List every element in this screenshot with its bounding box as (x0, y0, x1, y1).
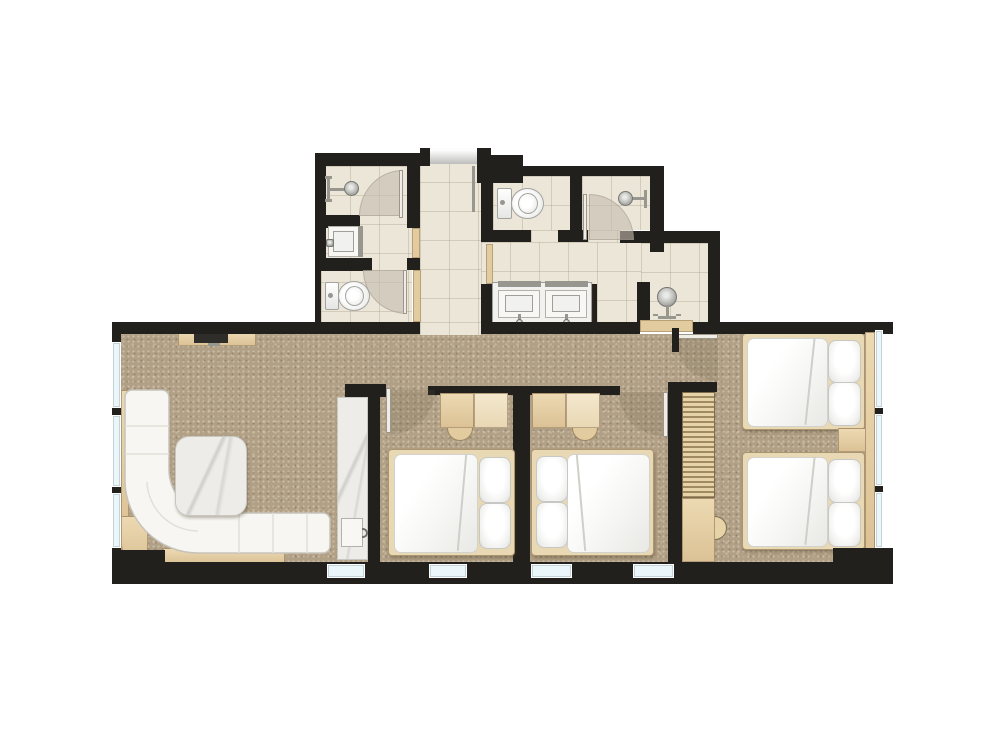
toilet2-doorway (531, 230, 560, 242)
main-wall-bottom (112, 562, 893, 584)
bed2-pillow-top (536, 456, 568, 502)
desk1-left-half (440, 393, 474, 428)
window-bottom-2 (429, 564, 467, 578)
shower3-handle-left-icon (653, 314, 658, 316)
window-bottom-4 (633, 564, 674, 578)
shower1-wall-patch (321, 166, 326, 215)
bed-bedroom1 (388, 449, 515, 556)
closet-louver-doors (682, 392, 715, 498)
bathroom-left-wall-top (315, 153, 420, 166)
toilet1-flush-button (328, 293, 333, 298)
minibar (341, 518, 363, 547)
closet-cap-wall (668, 382, 717, 392)
washbasin-bowl (333, 231, 354, 252)
vanity-shelf-left (498, 281, 541, 287)
shower3-wall-left-lower (637, 282, 650, 322)
desk1-right-half (474, 393, 508, 428)
bed3a-pillow-bottom (828, 382, 861, 426)
tv-icon (194, 334, 228, 343)
coffee-table (175, 436, 247, 516)
bed-bedroom2 (531, 449, 654, 556)
shower-valve-top-icon (325, 176, 332, 179)
washbasin-niche-threshold (412, 228, 420, 258)
shower2-bracket-icon (644, 190, 647, 208)
window-right-1 (875, 330, 883, 408)
window-left-3 (112, 493, 121, 548)
main-wall-top-middle (481, 322, 640, 334)
bed1-pillow-top (479, 457, 511, 503)
bathroom-mid-wall-left (481, 166, 493, 232)
shower3-wall-top (620, 231, 720, 243)
toilet2-flush-button (500, 200, 505, 205)
toilet1-door-leaf (403, 270, 407, 314)
entry-door-leaf (472, 166, 475, 212)
vanity-sink-left-bowl (505, 295, 533, 312)
bed3b-pillow-bottom (828, 502, 861, 547)
washbasin-faucet-icon (326, 239, 334, 247)
vanity-sink-right-bowl (552, 295, 580, 312)
toilet2-wall-bottom (481, 230, 531, 242)
bathroom-left-wall-right-stub (407, 258, 420, 270)
bathroom-mid-wall-top (523, 166, 664, 176)
shower2-head-icon (618, 191, 633, 206)
floor-plan (0, 0, 1000, 750)
shower2-door-leaf (583, 194, 587, 240)
vanity-shelf-right (545, 281, 588, 287)
closet-base (682, 498, 715, 562)
entry-wall-left (420, 148, 430, 166)
bedroom1-door-leaf (386, 388, 391, 433)
toilet1-seat (345, 286, 364, 306)
toilet2-seat (518, 193, 538, 214)
desk2-left-half (532, 393, 566, 428)
hall-main-opening (420, 322, 481, 335)
partition-bedroom2-closet (668, 382, 682, 564)
window-right-3 (875, 492, 883, 548)
bedroom2-door-leaf (663, 392, 668, 437)
left-wall-mullion-1 (112, 408, 121, 415)
bed3b-mattress (747, 457, 828, 547)
bathroom-left-wall-left-lower (315, 271, 321, 322)
hall-vanity-threshold (486, 244, 493, 284)
desk2-right-half (566, 393, 600, 428)
main-wall-top-left (112, 322, 422, 334)
bed3b-pillow-top (828, 459, 861, 503)
partition-bedroom1-bedroom2 (513, 386, 530, 564)
bed1-pillow-bottom (479, 503, 511, 549)
shower-valve-bottom-icon (325, 199, 332, 202)
shower3-head-icon (657, 287, 677, 307)
window-bottom-3 (531, 564, 572, 578)
entry-door-opening (430, 148, 477, 164)
threshold-stub-wall (672, 328, 679, 352)
bedroom3-door-leaf (678, 334, 718, 339)
window-right-2 (875, 414, 883, 486)
shower3-handle-bar-icon (658, 316, 676, 319)
bed-bedroom3-bottom (742, 452, 865, 550)
bed3a-mattress (747, 338, 828, 427)
shower-head-icon (344, 181, 359, 196)
left-wall-top (112, 322, 121, 342)
shower3-main-threshold (640, 320, 693, 332)
toilet1-threshold (413, 270, 421, 322)
bed3a-pillow-top (828, 340, 861, 383)
main-wall-top-right (693, 322, 893, 334)
bed2-pillow-bottom (536, 502, 568, 548)
towel-rail-icon (358, 226, 363, 257)
window-bottom-1 (327, 564, 365, 578)
shower3-wall-right (708, 231, 720, 332)
bed-bedroom3-top (742, 333, 865, 430)
tv-stand-icon (208, 343, 220, 346)
window-left-2 (112, 415, 121, 487)
shower3-room-floor (641, 243, 708, 322)
partition-living-bedroom1 (368, 385, 380, 564)
bathroom-left-wall-right-upper (407, 153, 420, 228)
nightstand (838, 428, 866, 452)
window-left-1 (112, 342, 121, 408)
shower3-handle-right-icon (676, 314, 681, 316)
double-vanity-counter (492, 282, 592, 326)
shower1-door-leaf (399, 170, 403, 218)
bedroom3-headboard-panel (865, 332, 875, 550)
